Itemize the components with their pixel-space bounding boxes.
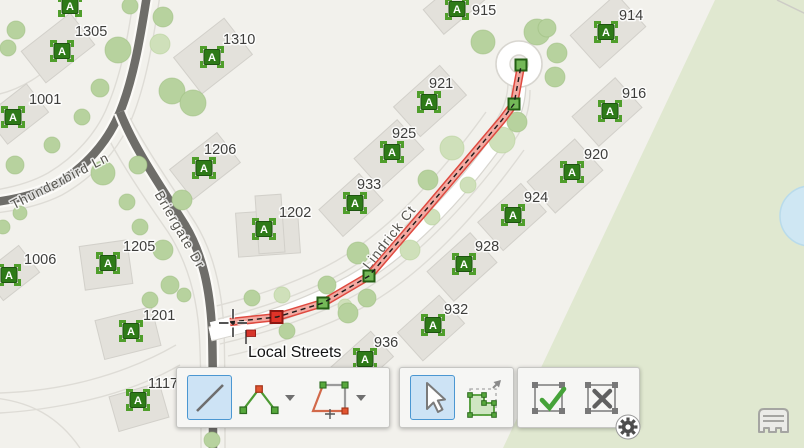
address-label: 933 (357, 177, 381, 193)
address-label: 1117 (148, 376, 178, 392)
svg-text:A: A (58, 46, 66, 58)
sketch-vertex[interactable] (318, 298, 329, 309)
svg-text:A: A (602, 27, 610, 39)
polyline-tool-button[interactable] (236, 375, 281, 420)
address-label: 1205 (123, 239, 155, 255)
address-point-marker[interactable]: A (52, 42, 73, 61)
polygon-tool-icon (308, 376, 352, 420)
address-label: 1206 (204, 142, 236, 158)
address-point-marker[interactable]: A (345, 194, 366, 213)
address-label: 915 (472, 3, 496, 19)
svg-text:A: A (453, 4, 461, 16)
polyline-tool-icon (237, 376, 281, 420)
address-point-marker[interactable]: A (128, 391, 149, 410)
address-label: 920 (584, 147, 608, 163)
map-editing-view: Thunderbird Ln Briergate Dr Lindrick Ct … (0, 0, 804, 448)
building-icon (759, 409, 788, 432)
svg-text:A: A (104, 258, 112, 270)
select-pointer-icon (411, 376, 455, 420)
svg-text:A: A (460, 259, 468, 271)
address-label: 1001 (29, 92, 61, 108)
finish-sketch-check-icon (527, 376, 571, 420)
svg-text:A: A (134, 395, 142, 407)
svg-text:A: A (606, 106, 614, 118)
address-point-marker[interactable]: A (254, 220, 275, 239)
address-point-marker[interactable]: A (382, 143, 403, 162)
svg-text:A: A (388, 147, 396, 159)
svg-text:A: A (568, 167, 576, 179)
address-label: 914 (619, 8, 643, 24)
draw-tools-group (176, 367, 390, 428)
address-label: 1202 (279, 205, 311, 221)
address-label: 1006 (24, 252, 56, 268)
address-label: 916 (622, 86, 646, 102)
svg-text:A: A (260, 224, 268, 236)
svg-text:A: A (351, 198, 359, 210)
snap-tooltip: Local Streets (248, 344, 341, 361)
address-point-marker[interactable]: A (60, 0, 81, 16)
address-point-marker[interactable]: A (423, 316, 444, 335)
address-label: 936 (374, 335, 398, 351)
svg-text:A: A (361, 354, 369, 366)
svg-text:A: A (66, 1, 74, 13)
address-point-marker[interactable]: A (194, 159, 215, 178)
address-point-marker[interactable]: A (98, 254, 119, 273)
address-label: 928 (475, 239, 499, 255)
address-point-marker[interactable]: A (447, 0, 468, 19)
svg-text:A: A (9, 112, 17, 124)
svg-text:A: A (208, 52, 216, 64)
address-label: 925 (392, 126, 416, 142)
svg-text:A: A (425, 97, 433, 109)
address-point-marker[interactable]: A (355, 350, 376, 369)
polyline-dropdown-caret[interactable] (285, 395, 295, 401)
address-point-marker[interactable]: A (562, 163, 583, 182)
address-point-marker[interactable]: A (419, 93, 440, 112)
svg-text:A: A (200, 163, 208, 175)
polygon-dropdown-caret[interactable] (356, 395, 366, 401)
gear-icon (614, 413, 642, 441)
address-point-marker[interactable]: A (503, 206, 524, 225)
svg-text:A: A (5, 270, 13, 282)
reshape-tool-icon (461, 376, 505, 420)
svg-text:A: A (429, 320, 437, 332)
svg-text:A: A (127, 326, 135, 338)
address-point-marker[interactable]: A (596, 23, 617, 42)
select-tools-group (399, 367, 514, 428)
address-label: 932 (444, 302, 468, 318)
address-label: 921 (429, 76, 453, 92)
toolbar-settings-button[interactable] (614, 413, 642, 441)
finish-sketch-button[interactable] (526, 375, 571, 420)
address-point-marker[interactable]: A (454, 255, 475, 274)
select-tool-button[interactable] (410, 375, 455, 420)
line-tool-icon (188, 376, 232, 420)
address-point-marker[interactable]: A (0, 266, 20, 285)
polygon-tool-button[interactable] (307, 375, 352, 420)
address-label: 1305 (75, 24, 107, 40)
address-point-marker[interactable]: A (202, 48, 223, 67)
line-tool-button[interactable] (187, 375, 232, 420)
address-label: 924 (524, 190, 548, 206)
reshape-tool-button[interactable] (460, 375, 505, 420)
address-point-marker[interactable]: A (600, 102, 621, 121)
address-point-marker[interactable]: A (121, 322, 142, 341)
address-label: 1201 (143, 308, 175, 324)
address-point-marker[interactable]: A (3, 108, 24, 127)
svg-text:A: A (509, 210, 517, 222)
address-label: 1310 (223, 32, 255, 48)
